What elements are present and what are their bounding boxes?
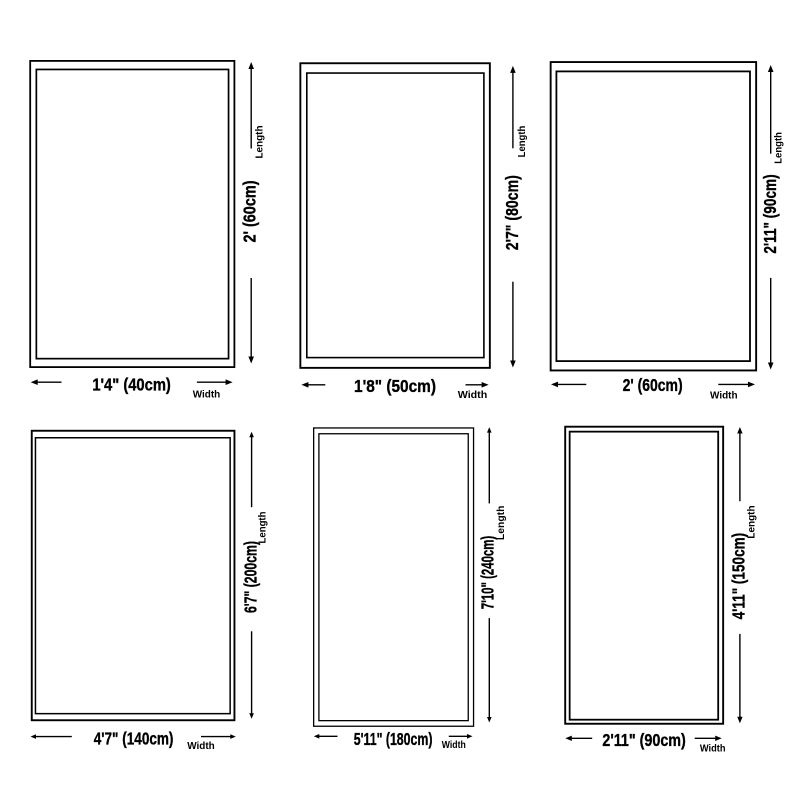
svg-text:Width: Width: [710, 390, 738, 401]
svg-text:4'11" (150cm): 4'11" (150cm): [729, 533, 749, 620]
svg-text:Length: Length: [773, 132, 784, 164]
svg-text:Length: Length: [496, 506, 507, 541]
svg-text:2'11" (90cm): 2'11" (90cm): [602, 730, 685, 750]
svg-text:2'11" (90cm): 2'11" (90cm): [760, 174, 780, 253]
svg-text:5'11" (180cm): 5'11" (180cm): [354, 729, 433, 749]
svg-text:2' (60cm): 2' (60cm): [623, 375, 683, 395]
svg-text:Width: Width: [193, 390, 221, 401]
svg-text:6'7" (200cm): 6'7" (200cm): [240, 541, 260, 613]
svg-text:1'8" (50cm): 1'8" (50cm): [354, 376, 436, 396]
svg-text:Width: Width: [442, 740, 466, 751]
svg-text:2'7" (80cm): 2'7" (80cm): [502, 175, 522, 250]
svg-text:2' (60cm): 2' (60cm): [240, 181, 260, 243]
svg-text:1'4" (40cm): 1'4" (40cm): [92, 375, 171, 395]
svg-text:Length: Length: [517, 126, 528, 158]
svg-text:Length: Length: [257, 512, 268, 544]
svg-text:Width: Width: [700, 744, 726, 755]
svg-text:4'7" (140cm): 4'7" (140cm): [94, 728, 174, 748]
svg-text:Length: Length: [254, 126, 265, 159]
svg-text:Width: Width: [458, 390, 488, 401]
svg-text:7'10" (240cm): 7'10" (240cm): [478, 536, 498, 610]
svg-text:Width: Width: [187, 741, 215, 752]
